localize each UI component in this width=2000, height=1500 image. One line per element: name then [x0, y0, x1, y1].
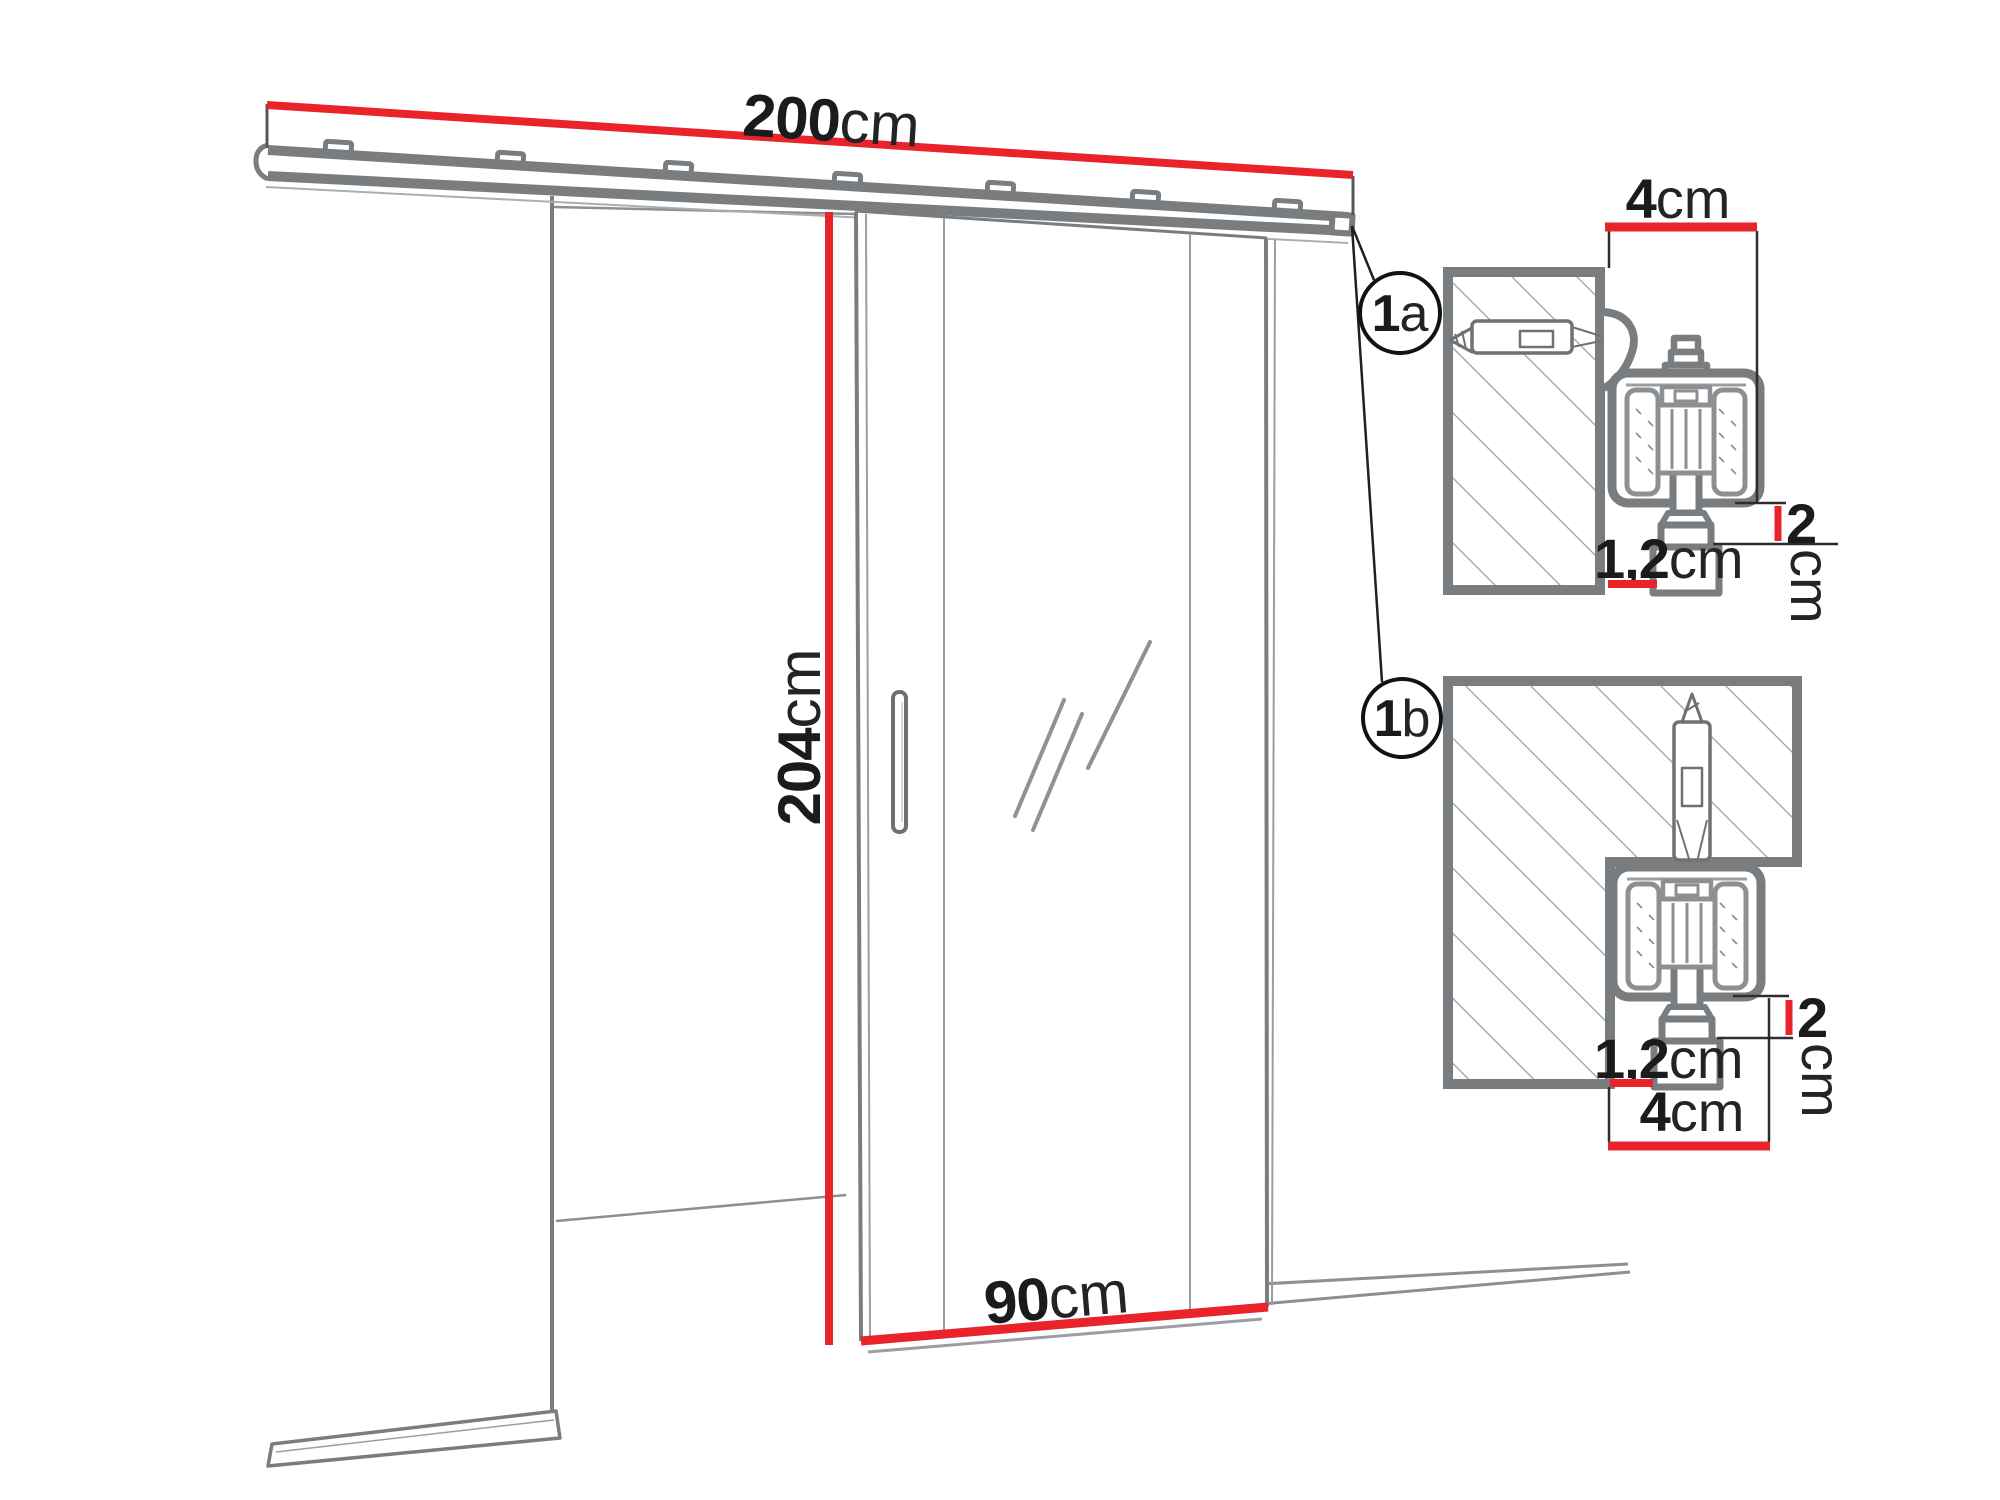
rail-left-cap: [256, 145, 268, 179]
callouts: 1a 1b: [1352, 226, 1441, 757]
door-width-label: 90cm: [981, 1258, 1131, 1337]
callout-label-1b: 1b: [1374, 690, 1431, 748]
dimension-1-2cm-1a: 1,2cm: [1594, 527, 1744, 590]
clearance-label-1b: 2: [1797, 986, 1827, 1049]
rail-right-cap: [1331, 214, 1352, 233]
sliding-door-dimension-diagram: 200cm 90cm: [0, 0, 2000, 1500]
main-view: 200cm 90cm: [256, 81, 1630, 1466]
clearance-label-1a: 2: [1786, 492, 1816, 555]
back-floor-line: [556, 1195, 846, 1221]
callout-label-1a: 1a: [1372, 285, 1429, 343]
door-face: [855, 211, 1268, 1341]
right-floor-line-lower: [1262, 1272, 1630, 1304]
track-length-label: 200cm: [741, 81, 922, 159]
sliding-door: [855, 211, 1275, 1352]
clearance-unit-1b: cm: [1790, 1043, 1853, 1118]
detail-view-1a: 4cm 2 cm 1,2cm: [1448, 167, 1842, 624]
diagram-canvas: 200cm 90cm: [0, 0, 2000, 1500]
left-skirting-board: [268, 1411, 560, 1466]
door-right-edge-outer: [1272, 240, 1275, 1305]
door-height-label: 204cm: [766, 648, 833, 825]
dimension-door-height: 204cm: [766, 212, 833, 1345]
bracket-depth-label-1a: 4cm: [1626, 167, 1731, 230]
track-width-label-1b: 4cm: [1640, 1080, 1745, 1143]
detail-view-1b: 2 cm 1,2cm 4cm: [1448, 681, 1853, 1146]
right-floor-line-upper: [1262, 1264, 1628, 1284]
door-handle: [893, 692, 906, 832]
clearance-unit-1a: cm: [1779, 549, 1842, 624]
door-right-edge: [1266, 239, 1267, 1307]
